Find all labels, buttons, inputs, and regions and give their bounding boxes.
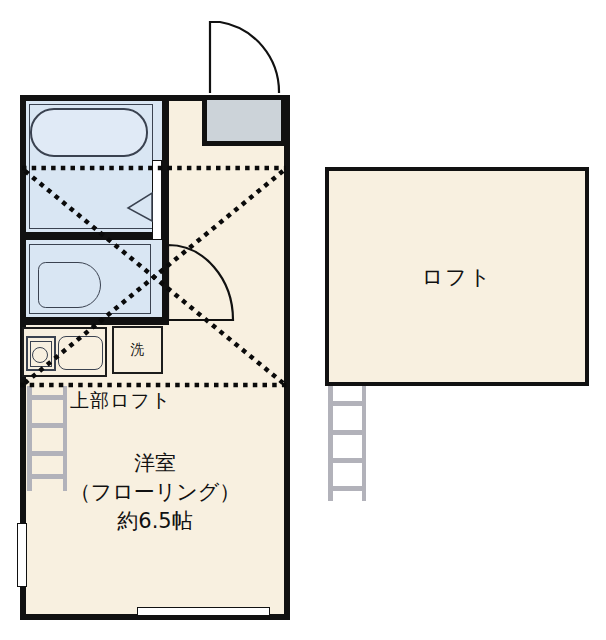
burner-icon [32, 347, 48, 363]
entrance-door-swing-icon [210, 22, 279, 93]
ladder-rung [328, 458, 366, 463]
wall-bathroom-toilet [20, 232, 169, 240]
loft-room: ロフト [325, 167, 589, 386]
ladder-rung [27, 395, 67, 400]
entry-step [202, 95, 286, 146]
main-room-flooring: （フローリング） [26, 478, 284, 507]
loft-ladder-loft [328, 386, 366, 501]
loft-room-label: ロフト [422, 263, 492, 291]
ladder-rung [27, 423, 67, 428]
wall-toilet-kitchen [20, 317, 169, 325]
window-bottom-wall [137, 607, 270, 616]
upper-loft-label: 上部ロフト [70, 388, 171, 414]
kitchen-sink-icon [58, 336, 103, 370]
ladder-rung [328, 401, 366, 406]
washing-machine-icon: 洗 [112, 326, 163, 374]
washing-machine-label: 洗 [131, 341, 145, 359]
ladder-rung [328, 486, 366, 491]
hall-door-leaf [152, 160, 162, 240]
floor-plan: 洗 ロフト 上部ロフト 洋室 （フローリング） 約6.5帖 [0, 0, 606, 640]
bathtub-icon [30, 108, 148, 157]
main-room-label: 洋室 （フローリング） 約6.5帖 [26, 449, 284, 536]
ladder-rung [328, 430, 366, 435]
main-room-name: 洋室 [26, 449, 284, 478]
toilet-icon [38, 262, 101, 308]
wall-bathroom-hall [162, 95, 169, 322]
main-room-size: 約6.5帖 [26, 507, 284, 536]
